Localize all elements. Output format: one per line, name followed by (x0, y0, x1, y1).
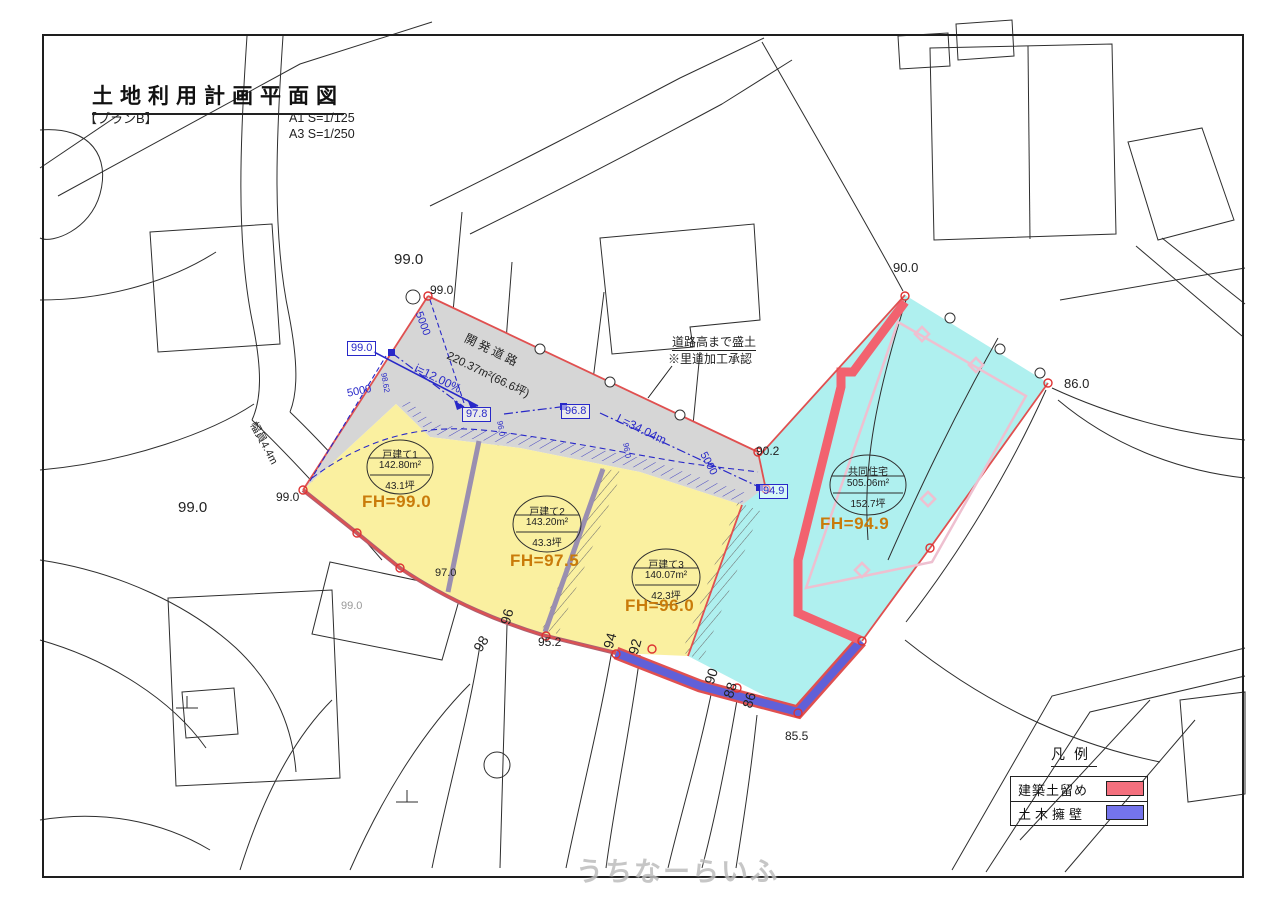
level-box-978: 97.8 (462, 407, 491, 422)
parcel3-fh: FH=96.0 (625, 596, 694, 616)
parcel4-fh: FH=94.9 (820, 514, 889, 534)
elev-99-top-small: 99.0 (430, 284, 453, 298)
level-box-99: 99.0 (347, 341, 376, 356)
level-box-968: 96.8 (561, 404, 590, 419)
note-line1: 道路高まで盛土 (672, 335, 756, 351)
plan-label: 【プランB】 (84, 112, 158, 127)
scale-a3: A3 S=1/250 (289, 127, 355, 141)
parcel4-area: 505.06m² (823, 478, 913, 489)
elev-99-left-small: 99.0 (276, 491, 299, 505)
elev-99-base: 99.0 (341, 600, 362, 613)
legend-divider (1010, 801, 1148, 802)
drawing-canvas: 土地利用計画平面図 【プランB】 A1 S=1/125 A3 S=1/250 道… (0, 0, 1280, 905)
parcel1-tsubo: 43.1坪 (355, 477, 445, 492)
parcel3-name: 戸建て3 (621, 556, 711, 571)
parcel2-fh: FH=97.5 (510, 551, 579, 571)
legend-item-2-label: 土木擁壁 (1018, 804, 1086, 823)
elev-952: 95.2 (538, 636, 561, 650)
page-title: 土地利用計画平面図 (92, 80, 344, 115)
parcel1-fh: FH=99.0 (362, 492, 431, 512)
watermark: うちなーらいふ (576, 850, 779, 889)
legend-swatch-blue (1106, 805, 1144, 820)
scale-a1: A1 S=1/125 (289, 111, 355, 125)
elev-97: 97.0 (435, 567, 456, 580)
parcel1-name: 戸建て1 (355, 446, 445, 461)
level-box-949: 94.9 (759, 484, 788, 499)
elev-99-left: 99.0 (178, 499, 207, 516)
elev-90: 90.0 (893, 261, 918, 276)
elev-902: 90.2 (756, 445, 779, 459)
parcel1-area: 142.80m² (355, 460, 445, 471)
elev-86: 86.0 (1064, 377, 1089, 392)
elev-855: 85.5 (785, 730, 808, 744)
parcel2-tsubo: 43.3坪 (502, 534, 592, 549)
parcel2-name: 戸建て2 (502, 503, 592, 518)
legend-item-1-label: 建築土留め (1018, 780, 1088, 799)
legend-title: 凡例 (1051, 744, 1097, 767)
parcel3-area: 140.07m² (621, 570, 711, 581)
legend-swatch-red (1106, 781, 1144, 796)
parcel4-tsubo: 152.7坪 (823, 495, 913, 510)
elev-99-top: 99.0 (394, 251, 423, 268)
parcel4-name: 共同住宅 (823, 463, 913, 478)
note-line2: ※里道加工承認 (668, 353, 752, 367)
parcel2-area: 143.20m² (502, 517, 592, 528)
